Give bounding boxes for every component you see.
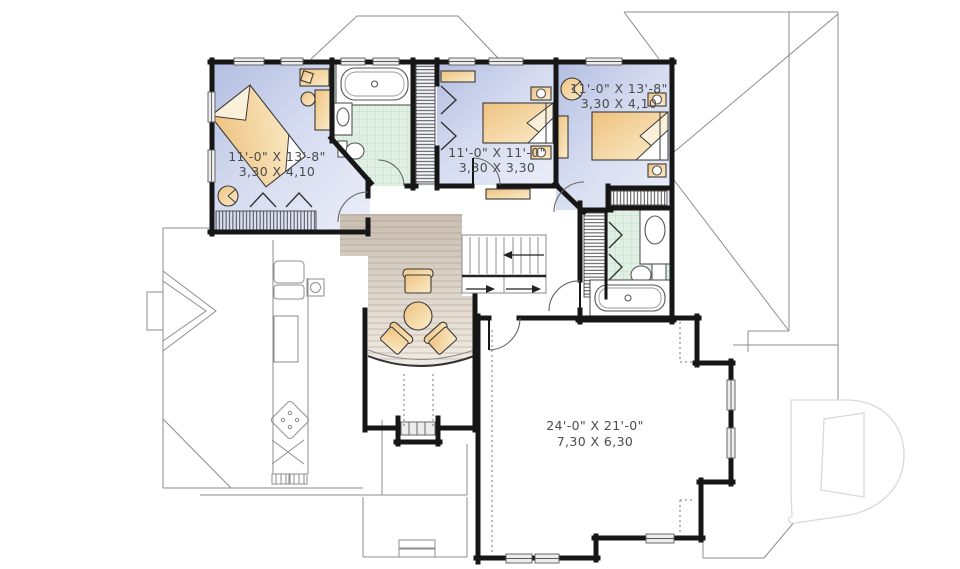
kitchen-outline <box>270 261 324 484</box>
hall-console-table <box>486 189 530 199</box>
porch-steps-outline <box>399 540 435 557</box>
bedroom-1-dimensions-imperial: 11'-0" X 13'-8" <box>228 149 326 164</box>
bonus-room-dimensions-metric: 7,30 X 6,30 <box>557 434 634 449</box>
bonus-room-door <box>489 318 520 350</box>
bedroom-2-closet <box>416 64 435 184</box>
stove-outline <box>270 400 310 440</box>
staircase <box>462 235 546 293</box>
bedroom-1-dimensions-metric: 3,30 X 4,10 <box>239 164 316 179</box>
bathroom-2-door <box>549 281 580 311</box>
bedroom-2-shelf <box>441 71 475 82</box>
floor-plan-page: 11'-0" X 13'-8" 3,30 X 4,10 11'-0" X 11'… <box>0 0 960 569</box>
sitting-round-table <box>404 302 432 330</box>
bedroom-3-bed <box>592 112 668 160</box>
bedroom-2-bed <box>483 103 553 143</box>
tub-drain <box>372 81 378 87</box>
chimney-outline <box>147 292 163 330</box>
bedroom-1-closet <box>216 211 316 231</box>
bedroom-3-dimensions-metric: 3,30 X 4,10 <box>581 96 658 111</box>
bonus-room-dimensions-imperial: 24'-0" X 21'-0" <box>546 418 644 433</box>
floor-plan-canvas: 11'-0" X 13'-8" 3,30 X 4,10 11'-0" X 11'… <box>0 0 960 569</box>
tub-drain <box>625 295 631 301</box>
bedroom-2-dimensions-metric: 3,30 X 3,30 <box>459 160 536 175</box>
sitting-armchair-top <box>403 269 433 293</box>
bedroom-2-dimensions-imperial: 11'-0" X 11'-0" <box>448 145 546 160</box>
d-logo-inner <box>821 413 864 497</box>
bedroom-3-closet <box>611 191 667 205</box>
balcony-bay-window <box>401 422 435 435</box>
d-logo-watermark <box>788 400 904 523</box>
bedroom-3-dimensions-imperial: 11'-0" X 13'-8" <box>570 81 668 96</box>
dormer-roof <box>311 16 498 59</box>
